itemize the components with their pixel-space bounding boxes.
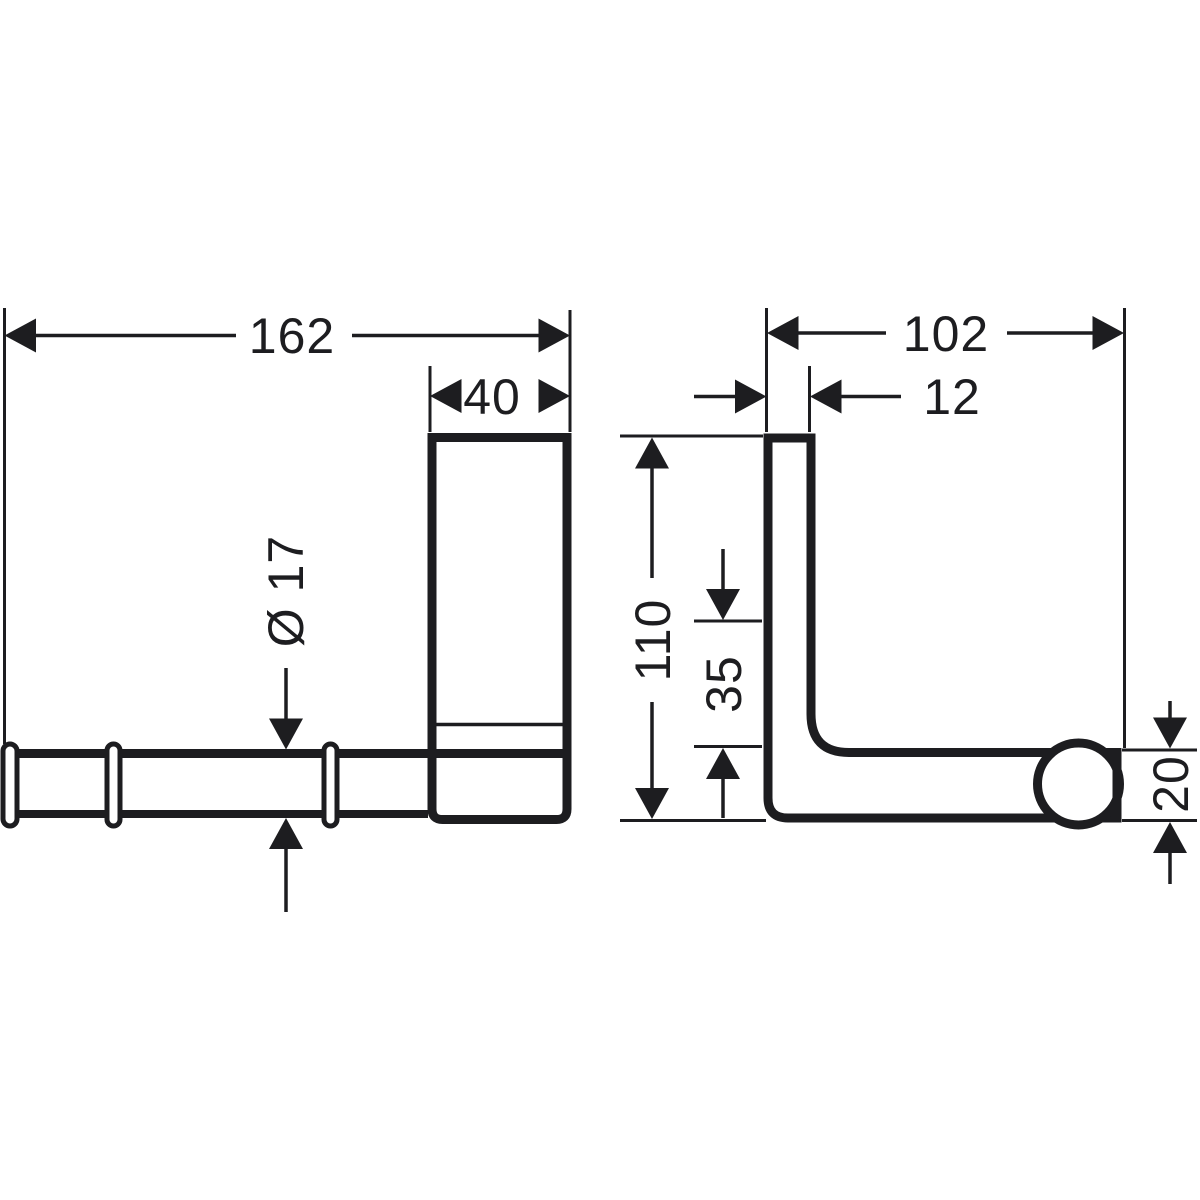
- dimension-height: 110: [625, 438, 681, 820]
- arrowhead-left-icon: [767, 316, 799, 350]
- end-height-label: 20: [1143, 755, 1199, 813]
- dimension-bar-diameter: Ø 17: [258, 535, 314, 912]
- arrowhead-right-icon: [1093, 316, 1125, 350]
- bar-ring: [324, 744, 337, 826]
- plate-thickness-label: 12: [923, 369, 981, 425]
- bar-ring: [107, 744, 120, 826]
- dimension-inner-offset: 35: [694, 549, 762, 818]
- front-view: 162 40 Ø 17: [3, 308, 570, 912]
- dimension-plate-thickness: 12: [694, 369, 981, 425]
- dimension-bar-length: 162: [5, 308, 571, 364]
- dimension-end-height: 20: [1122, 701, 1199, 884]
- bar-end-cap: [3, 744, 17, 826]
- plate-width-label: 40: [463, 369, 521, 425]
- arrowhead-down-icon: [269, 719, 303, 750]
- inner-offset-label: 35: [696, 655, 752, 713]
- dimension-depth: 102: [767, 306, 1124, 362]
- mounting-plate-outline: [432, 438, 567, 820]
- dimension-plate-width: 40: [430, 369, 570, 425]
- height-label: 110: [625, 599, 681, 682]
- arrowhead-up-icon: [635, 438, 669, 469]
- depth-label: 102: [903, 306, 989, 362]
- bar-length-label: 162: [249, 308, 335, 364]
- arrowhead-right-icon: [539, 379, 571, 413]
- arrowhead-down-icon: [635, 788, 669, 819]
- side-view: 102 12 110 35: [620, 306, 1199, 884]
- arrowhead-left-icon: [5, 319, 37, 353]
- arrowhead-down-icon: [1153, 718, 1187, 749]
- arrowhead-up-icon: [706, 748, 740, 779]
- arrowhead-right-icon: [539, 319, 571, 353]
- arrowhead-left-icon: [810, 380, 842, 414]
- arrowhead-down-icon: [706, 589, 740, 620]
- arrowhead-left-icon: [430, 379, 462, 413]
- bar-diameter-label: Ø 17: [258, 535, 314, 647]
- arrowhead-right-icon: [735, 380, 767, 414]
- technical-drawing-canvas: 162 40 Ø 17: [0, 0, 1200, 1200]
- arrowhead-up-icon: [269, 818, 303, 849]
- bar-cross-section: [1038, 743, 1120, 825]
- arrowhead-up-icon: [1153, 822, 1187, 853]
